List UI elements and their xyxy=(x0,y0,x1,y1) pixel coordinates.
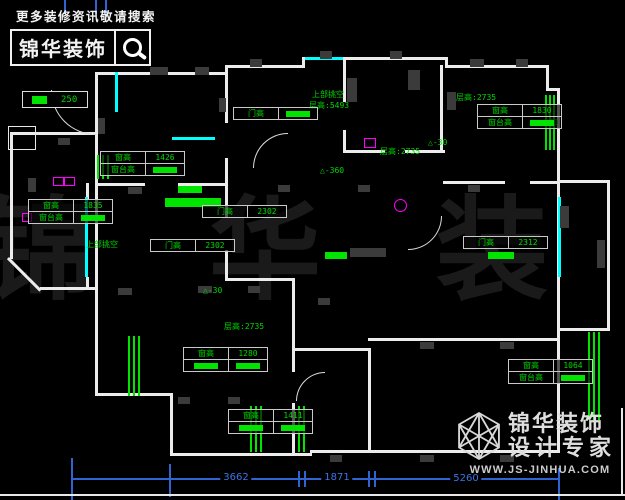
annotation-label-cell: 窗台高 xyxy=(101,164,145,175)
footer-brand-line1: 锦华装饰 xyxy=(508,412,616,436)
annotation-table-row: 窗高1830 xyxy=(478,105,561,116)
furniture-block xyxy=(468,185,480,192)
highlighted-value xyxy=(281,425,305,431)
annotation-label-cell xyxy=(184,360,228,371)
fixture-marker xyxy=(53,177,64,186)
annotation-label-cell: 窗台高 xyxy=(509,372,553,383)
annotation-value-cell xyxy=(273,422,312,433)
furniture-block xyxy=(347,78,357,102)
highlighted-window-bar xyxy=(593,332,595,420)
wall-segment xyxy=(292,348,370,351)
annotation-table-row: 窗台高 xyxy=(29,211,112,223)
plan-annotation: 层高:2735 xyxy=(224,322,264,331)
annotation-table-row: 窗台高 xyxy=(101,163,184,175)
highlighted-value xyxy=(530,120,554,126)
annotation-table-row xyxy=(229,421,312,433)
cad-floorplan-screenshot: 锦 华 装 饰 上部挑空层高:5493层高:2735层高:2735层高:2735… xyxy=(0,0,625,500)
search-cell xyxy=(116,31,149,64)
annotation-table-row: 门高2312 xyxy=(464,237,547,248)
furniture-block xyxy=(150,67,168,75)
furniture-block xyxy=(178,397,190,404)
wall-segment xyxy=(443,181,505,184)
wall-segment xyxy=(10,132,13,259)
annotation-table-row: 窗高1426 xyxy=(101,152,184,163)
fixture-marker xyxy=(364,138,376,148)
annotation-value-cell: 1280 xyxy=(228,348,267,359)
wall-segment xyxy=(368,348,371,453)
wall-diagonal xyxy=(7,257,42,292)
wall-segment xyxy=(557,180,610,183)
annotation-label-cell: 窗高 xyxy=(184,348,228,359)
furniture-block xyxy=(318,298,330,305)
wall-segment xyxy=(368,338,560,341)
annotation-value-cell xyxy=(145,164,184,175)
door-swing-arc xyxy=(296,372,325,401)
highlighted-value xyxy=(561,375,585,381)
annotation-label-cell: 窗高 xyxy=(509,360,553,371)
annotation-label-cell: 窗台高 xyxy=(478,117,522,128)
furniture-block xyxy=(248,286,260,293)
annotation-table: 窗高1280 xyxy=(183,347,268,372)
annotation-table-row xyxy=(184,359,267,371)
legend-highlight-swatch xyxy=(32,96,47,104)
plan-annotation: 上部挑空 xyxy=(312,90,344,99)
annotation-value-cell: 1411 xyxy=(273,410,312,421)
dimension-tick xyxy=(374,471,376,487)
highlighted-value xyxy=(81,215,105,221)
furniture-block xyxy=(597,240,605,268)
annotation-table: 门高2302 xyxy=(150,239,235,252)
furniture-block xyxy=(28,178,36,192)
annotation-table: 门高 xyxy=(233,107,318,120)
highlighted-window-bar xyxy=(133,336,135,396)
annotation-value-cell: 1426 xyxy=(145,152,184,163)
annotation-table: 窗高1064窗台高 xyxy=(508,359,593,384)
annotation-label-cell: 窗高 xyxy=(478,105,522,116)
furniture-block xyxy=(320,51,332,59)
annotation-value-cell: 2312 xyxy=(508,237,547,248)
annotation-table: 窗高1830窗台高 xyxy=(477,104,562,129)
highlighted-window-bar xyxy=(128,336,130,396)
door-swing-arc xyxy=(253,133,288,168)
highlighted-value xyxy=(239,425,263,431)
wall-segment xyxy=(95,183,145,186)
furniture-block xyxy=(420,455,434,462)
annotation-label-cell: 门高 xyxy=(234,108,278,119)
annotation-table: 窗高1835窗台高 xyxy=(28,199,113,224)
dimension-label: 1871 xyxy=(321,472,352,484)
fixture-circle-marker xyxy=(394,199,407,212)
plan-annotation: 层高:2735 xyxy=(456,93,496,102)
search-icon xyxy=(123,38,142,57)
furniture-block xyxy=(128,187,142,194)
wall-segment xyxy=(607,180,610,330)
furniture-block xyxy=(350,248,386,257)
wall-segment xyxy=(530,181,560,184)
dimension-tick xyxy=(304,471,306,487)
annotation-table-row: 窗高1280 xyxy=(184,348,267,359)
highlighted-window-bar xyxy=(97,155,99,179)
furniture-block xyxy=(390,51,402,59)
plan-annotation: △-360 xyxy=(320,166,344,175)
annotation-label-cell: 窗台高 xyxy=(29,212,73,223)
annotation-value-cell: 1064 xyxy=(553,360,592,371)
annotation-value-cell xyxy=(228,360,267,371)
annotation-label-cell: 窗高 xyxy=(29,200,73,211)
highlighted-window-bar xyxy=(138,336,140,396)
wall-outline xyxy=(8,126,36,150)
furniture-block xyxy=(358,185,370,192)
plan-annotation: 上部挑空 xyxy=(86,240,118,249)
furniture-block xyxy=(98,118,105,134)
annotation-table-row: 窗高1064 xyxy=(509,360,592,371)
annotation-label-cell: 窗高 xyxy=(101,152,145,163)
header-brand-name: 锦华装饰 xyxy=(12,31,114,64)
dimension-tick xyxy=(298,471,300,487)
wall-segment xyxy=(170,395,173,456)
wall-segment xyxy=(557,328,610,331)
header-tagline: 更多装修资讯敬请搜索 xyxy=(16,6,156,25)
furniture-block xyxy=(330,455,342,462)
dimension-tick xyxy=(169,464,171,497)
wall-segment xyxy=(343,150,385,153)
annotation-value-cell xyxy=(522,117,561,128)
dimension-line xyxy=(72,478,560,480)
highlighted-value xyxy=(236,363,260,369)
window-marker xyxy=(172,137,215,140)
furniture-block xyxy=(447,92,456,110)
annotation-value-cell: 2302 xyxy=(195,240,234,251)
wall-segment xyxy=(445,65,549,68)
highlight-box xyxy=(488,252,514,259)
highlighted-value xyxy=(194,363,218,369)
furniture-block xyxy=(408,70,420,90)
highlight-box xyxy=(178,186,202,193)
highlighted-window-bar xyxy=(598,332,600,420)
furniture-block xyxy=(228,397,240,404)
furniture-block xyxy=(118,288,132,295)
annotation-table-row: 门高2302 xyxy=(203,206,286,217)
furniture-block xyxy=(420,342,434,349)
window-marker xyxy=(115,72,118,112)
footer-logo: 锦华装饰 设计专家 WWW.JS-JINHUA.COM xyxy=(456,410,624,476)
plan-annotation: △-30 xyxy=(203,286,222,295)
annotation-label-cell: 门高 xyxy=(203,206,247,217)
furniture-block xyxy=(516,59,528,67)
furniture-block xyxy=(58,138,70,145)
annotation-value-cell: 1830 xyxy=(522,105,561,116)
wall-segment xyxy=(225,65,228,123)
cube-logo-icon xyxy=(456,410,502,462)
annotation-label-cell xyxy=(229,422,273,433)
highlighted-value xyxy=(286,111,310,117)
annotation-label-cell: 窗高 xyxy=(229,410,273,421)
annotation-table: 门高2312 xyxy=(463,236,548,249)
wall-segment xyxy=(225,278,295,281)
footer-logo-row: 锦华装饰 设计专家 xyxy=(456,410,624,462)
annotation-table: 窗高1411 xyxy=(228,409,313,434)
footer-brand-line2: 设计专家 xyxy=(508,436,616,460)
wall-segment xyxy=(225,158,228,186)
wall-segment xyxy=(225,250,228,280)
furniture-block xyxy=(278,185,290,192)
annotation-value-cell xyxy=(278,108,317,119)
annotation-table-row: 门高 xyxy=(234,108,317,119)
annotation-table: 门高2302 xyxy=(202,205,287,218)
annotation-value-cell: 2302 xyxy=(247,206,286,217)
header-logo: 更多装修资讯敬请搜索 锦华装饰 xyxy=(10,6,156,66)
furniture-block xyxy=(560,206,569,228)
annotation-table-row: 窗高1835 xyxy=(29,200,112,211)
furniture-block xyxy=(250,59,262,67)
annotation-table: 窗高1426窗台高 xyxy=(100,151,185,176)
wall-segment xyxy=(292,280,295,372)
door-swing-arc xyxy=(408,216,442,250)
wall-segment xyxy=(95,282,98,396)
dimension-tick xyxy=(368,471,370,487)
annotation-value-cell xyxy=(73,212,112,223)
annotation-table-row: 窗高1411 xyxy=(229,410,312,421)
wall-segment xyxy=(86,277,89,289)
header-brand-box: 锦华装饰 xyxy=(10,29,151,66)
annotation-table-row: 窗台高 xyxy=(509,371,592,383)
annotation-table-row: 窗台高 xyxy=(478,116,561,128)
furniture-block xyxy=(219,98,226,112)
footer-brand-names: 锦华装饰 设计专家 xyxy=(508,412,616,460)
plan-annotation: △-30 xyxy=(428,138,447,147)
highlighted-value xyxy=(153,167,177,173)
annotation-label-cell: 门高 xyxy=(151,240,195,251)
legend-value: 250 xyxy=(61,95,77,105)
annotation-label-cell: 门高 xyxy=(464,237,508,248)
highlight-box xyxy=(325,252,347,259)
fixture-marker xyxy=(64,177,75,186)
wall-segment xyxy=(225,65,305,68)
annotation-table-row: 门高2302 xyxy=(151,240,234,251)
wall-segment xyxy=(170,453,312,456)
furniture-block xyxy=(500,342,514,349)
plan-annotation: 层高:2735 xyxy=(380,147,420,156)
legend-box: 250 xyxy=(22,91,88,108)
footer-url: WWW.JS-JINHUA.COM xyxy=(456,464,624,476)
furniture-block xyxy=(470,59,484,67)
annotation-value-cell: 1835 xyxy=(73,200,112,211)
furniture-block xyxy=(195,67,209,75)
annotation-value-cell xyxy=(553,372,592,383)
dimension-label: 3662 xyxy=(220,472,251,484)
page-border xyxy=(0,494,625,496)
